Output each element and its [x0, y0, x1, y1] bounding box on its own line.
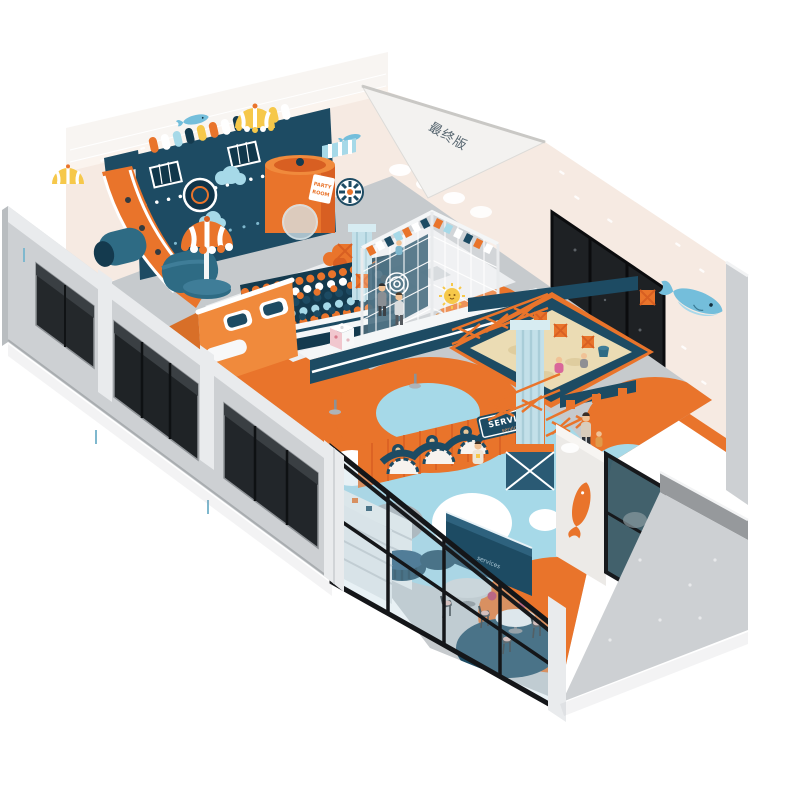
- scene-canvas: 最终版: [0, 0, 800, 800]
- isometric-playground-render: 最终版: [0, 0, 800, 800]
- bucket-icon: [598, 346, 609, 357]
- right-exterior-wall: [726, 262, 748, 505]
- crate-icon: [640, 290, 655, 305]
- person: [396, 240, 403, 255]
- dice-icon: [330, 323, 354, 350]
- striped-wheel-icon: [337, 179, 363, 205]
- person: [580, 353, 588, 368]
- person: [596, 431, 603, 447]
